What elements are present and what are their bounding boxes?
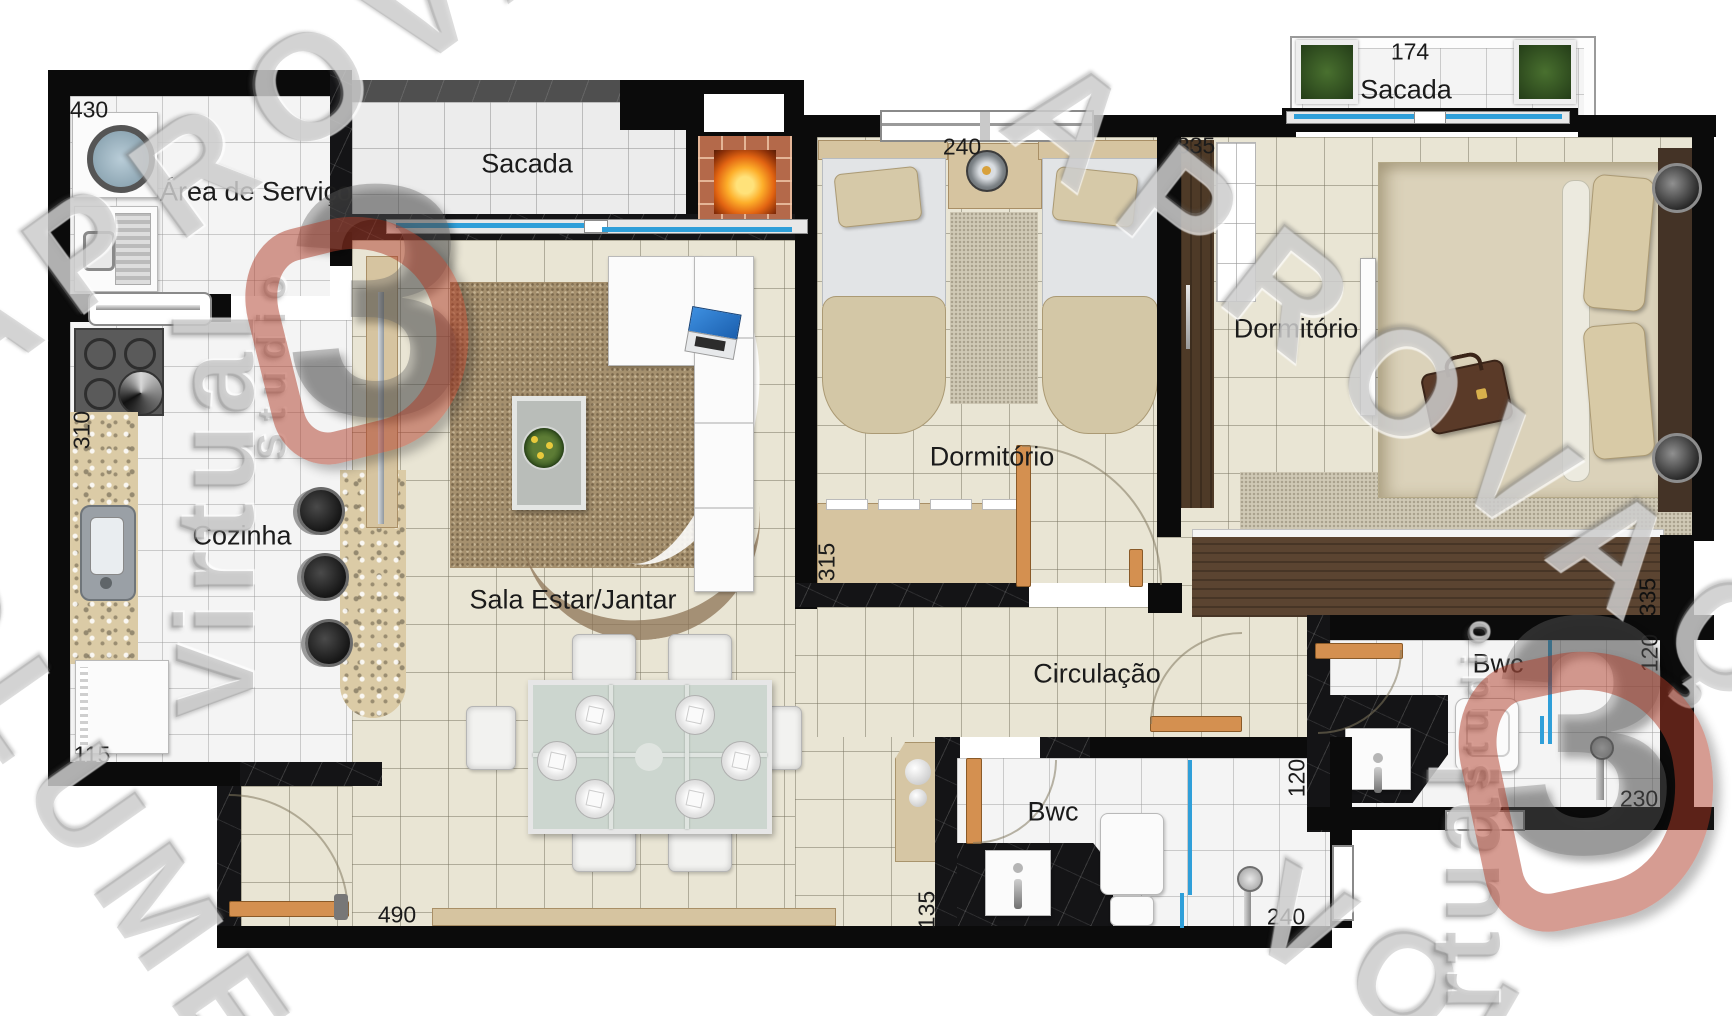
washboard (115, 213, 151, 285)
wall (1660, 615, 1694, 830)
plant (1514, 40, 1576, 104)
wall (795, 115, 817, 609)
shower-glass (1540, 716, 1544, 744)
pot (118, 370, 164, 416)
stove (74, 328, 164, 416)
dimension-335: 335 (1177, 133, 1215, 160)
wall (330, 232, 352, 266)
burner (84, 338, 116, 370)
shower-head (1590, 736, 1614, 760)
tank-basin (83, 231, 115, 271)
faucet (100, 577, 112, 589)
window-rod (96, 305, 200, 310)
room-label-area-de-servico: Área de Serviço (160, 177, 352, 208)
flower (537, 452, 544, 459)
toilet (1100, 813, 1164, 895)
dimension-120b: 120 (1637, 634, 1664, 672)
fireplace-niche (704, 94, 784, 132)
desk (817, 503, 1029, 585)
pass-through-window (88, 292, 212, 326)
bed-runner-rug (950, 212, 1038, 404)
wardrobe (1180, 140, 1214, 508)
wall-marble (330, 70, 352, 232)
dining-chair (572, 634, 636, 684)
shower-glass (1548, 640, 1552, 744)
bed-headboard (1038, 140, 1160, 160)
plate (675, 695, 715, 735)
wall (795, 115, 883, 137)
bed-headboard (818, 140, 948, 160)
dimension-430: 430 (70, 97, 108, 124)
room-label-sacada-direita: Sacada (1360, 75, 1452, 106)
flower-vase (524, 428, 564, 468)
bwc-window (1332, 845, 1354, 921)
wall (70, 294, 90, 322)
wall (1157, 137, 1181, 537)
dimension-490: 490 (378, 902, 416, 929)
glass-door-handle (1414, 111, 1446, 124)
flower (531, 436, 538, 443)
pillow (1582, 322, 1655, 461)
fridge-vent (80, 667, 88, 745)
desk-edge (930, 499, 972, 510)
door-leaf (1129, 549, 1143, 587)
bathroom-sink (1345, 728, 1411, 790)
wall-speaker (1652, 163, 1702, 213)
wall (620, 80, 686, 130)
sofa-body (694, 256, 754, 592)
washing-machine-door (87, 125, 155, 193)
glass-door-pane (396, 223, 584, 228)
sofa-seam (695, 507, 753, 509)
wall (48, 70, 70, 786)
plate (721, 741, 761, 781)
room-label-bwc-direito: Bwc (1472, 649, 1523, 680)
refrigerator (75, 660, 169, 754)
wall (1148, 583, 1182, 613)
floor-plan: Área de Serviço Sacada Cozinha Sala Esta… (0, 0, 1732, 1016)
toilet (1455, 698, 1519, 772)
decor-sphere (905, 759, 931, 785)
burner (124, 338, 156, 370)
room-label-sacada-esquerda: Sacada (481, 149, 573, 180)
bar-stool (305, 619, 353, 667)
dimension-174: 174 (1391, 39, 1429, 66)
sliding-door-rail (378, 292, 384, 524)
dimension-310: 310 (69, 411, 96, 449)
bar-stool (301, 553, 349, 601)
kitchen-sink (80, 505, 136, 601)
laptop-keys (694, 336, 725, 351)
plate (575, 779, 615, 819)
table-center (635, 743, 663, 771)
sofa-seam (695, 422, 753, 424)
wall-marble (795, 583, 1029, 607)
wall-marble (1040, 737, 1090, 758)
wall (1660, 535, 1694, 619)
dimension-135: 135 (914, 891, 941, 929)
room-label-dormitorio-solteiro: Dormitório (930, 442, 1055, 473)
sideboard (432, 908, 836, 926)
washing-machine (72, 112, 158, 198)
window-mullion (980, 112, 990, 140)
glass-door-pane (602, 227, 792, 232)
decor-sphere (909, 789, 927, 807)
wall (217, 926, 865, 948)
fireplace-fire (714, 150, 776, 214)
desk-edge (826, 499, 868, 510)
dimension-230: 230 (1620, 786, 1658, 813)
flower (546, 442, 553, 449)
drain (1013, 863, 1023, 873)
dimension-240: 240 (943, 134, 981, 161)
dining-chair (466, 706, 516, 770)
pillow (833, 166, 922, 228)
plate (675, 779, 715, 819)
door-hinge (334, 894, 348, 920)
bed-blanket (822, 296, 946, 434)
briefcase-clasp (1476, 388, 1488, 400)
room-label-sala: Sala Estar/Jantar (469, 585, 676, 616)
pillow (1051, 166, 1138, 228)
door-leaf-white (1360, 258, 1376, 416)
bar-stool (297, 487, 345, 535)
room-label-dormitorio-casal: Dormitório (1234, 314, 1359, 345)
bedroom-window (880, 110, 1094, 142)
glass-door-pane (1294, 114, 1414, 119)
dining-chair (668, 634, 732, 684)
desk-edge (878, 499, 920, 510)
plate (575, 695, 615, 735)
wall (1090, 737, 1332, 758)
lamp-bulb (982, 166, 991, 175)
plant (1296, 40, 1358, 104)
burner (84, 378, 116, 410)
dimension-120a: 120 (1284, 759, 1311, 797)
wall (862, 926, 1332, 948)
laptop (684, 306, 741, 360)
plate (537, 741, 577, 781)
room-label-circulacao: Circulação (1033, 659, 1161, 690)
laundry-tank (74, 206, 158, 292)
wall-speaker (1652, 433, 1702, 483)
dimension-240b: 240 (1267, 904, 1305, 931)
wall-marble (935, 737, 960, 758)
faucet (1014, 879, 1022, 909)
shower-head (1237, 866, 1263, 892)
shower-glass (1188, 760, 1192, 895)
shelf-unit (1216, 142, 1256, 302)
dresser (1192, 537, 1662, 617)
room-label-cozinha: Cozinha (192, 521, 291, 552)
glass-door-pane (1446, 114, 1562, 119)
sink-basin (90, 517, 124, 575)
drain (1373, 753, 1383, 763)
bed-blanket (1042, 296, 1158, 434)
bwc-window (1445, 810, 1525, 831)
wardrobe-handle (1186, 285, 1190, 349)
dimension-335b: 335 (1635, 578, 1662, 616)
pillow (1582, 174, 1655, 313)
room-label-bwc-inferior: Bwc (1027, 797, 1078, 828)
dimension-115: 115 (74, 742, 111, 769)
wall-marble (240, 762, 382, 786)
toilet-tank (1110, 896, 1154, 926)
dimension-315: 315 (814, 543, 841, 581)
wall (48, 70, 340, 96)
faucet (1374, 767, 1382, 793)
toilet-seat (1466, 709, 1510, 757)
shower-glass (1180, 893, 1184, 928)
bathroom-sink (985, 850, 1051, 916)
